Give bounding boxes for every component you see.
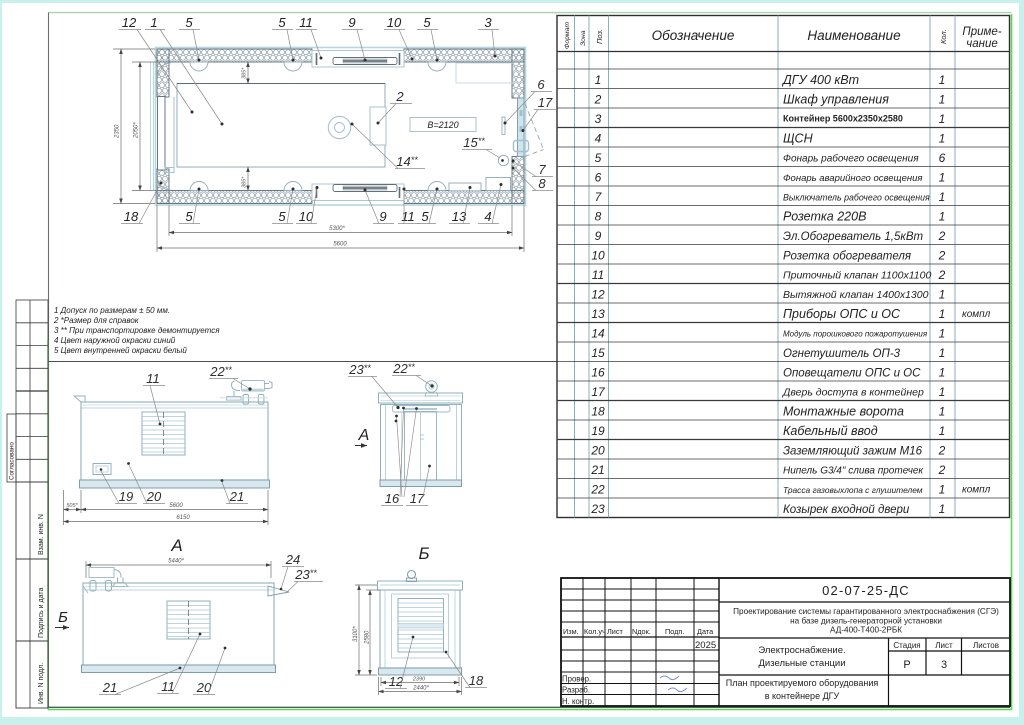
svg-text:11: 11 [146, 371, 160, 386]
svg-text:5300*: 5300* [329, 226, 345, 232]
svg-text:1: 1 [939, 288, 946, 302]
svg-text:Р: Р [903, 659, 910, 671]
svg-text:2390: 2390 [412, 677, 426, 683]
svg-text:5600: 5600 [333, 242, 347, 248]
svg-text:10: 10 [387, 15, 402, 30]
svg-text:Обозначение: Обозначение [652, 28, 735, 43]
svg-text:Дата: Дата [697, 627, 714, 636]
svg-text:Шкаф управления: Шкаф управления [783, 93, 889, 107]
svg-text:Заземляющий зажим М16: Заземляющий зажим М16 [783, 446, 923, 458]
svg-text:Кабельный ввод: Кабельный ввод [783, 424, 878, 438]
svg-text:2: 2 [938, 229, 946, 243]
svg-text:План проектируемого оборудован: План проектируемого оборудования [726, 678, 879, 688]
svg-text:ЩСН: ЩСН [783, 132, 814, 146]
svg-text:Приборы ОПС и ОС: Приборы ОПС и ОС [783, 307, 901, 321]
svg-text:1: 1 [939, 112, 946, 126]
svg-text:Дверь доступа в контейнер: Дверь доступа в контейнер [782, 387, 924, 399]
svg-text:21: 21 [102, 680, 117, 695]
svg-text:1: 1 [939, 307, 946, 321]
svg-text:11: 11 [592, 268, 604, 282]
svg-text:1: 1 [939, 327, 946, 341]
svg-text:18: 18 [124, 209, 139, 224]
svg-text:Провер.: Провер. [562, 675, 591, 684]
svg-text:1: 1 [939, 502, 946, 516]
svg-text:6150: 6150 [176, 515, 190, 521]
svg-text:23: 23 [590, 502, 605, 516]
svg-text:8: 8 [595, 210, 602, 224]
svg-text:1: 1 [150, 15, 157, 30]
svg-text:3: 3 [595, 112, 602, 126]
svg-text:9: 9 [595, 229, 602, 243]
svg-text:1: 1 [939, 73, 946, 87]
svg-text:5: 5 [185, 209, 193, 224]
svg-text:Монтажные ворота: Монтажные ворота [783, 405, 904, 419]
svg-text:5: 5 [421, 209, 429, 224]
svg-text:Подпись и дата: Подпись и дата [38, 588, 45, 638]
svg-text:Наименование: Наименование [807, 28, 900, 43]
svg-text:5440*: 5440* [168, 559, 184, 565]
svg-text:компл: компл [962, 485, 991, 496]
svg-text:Листов: Листов [973, 641, 999, 650]
svg-text:17: 17 [410, 491, 425, 506]
svg-text:Фонарь аварийного освещения: Фонарь аварийного освещения [783, 173, 922, 184]
svg-text:1: 1 [939, 346, 946, 360]
svg-text:9: 9 [379, 209, 386, 224]
svg-text:11: 11 [299, 15, 313, 30]
svg-text:6: 6 [537, 77, 545, 92]
svg-text:18: 18 [469, 673, 484, 688]
svg-text:Розетка обогревателя: Розетка обогревателя [783, 251, 911, 263]
svg-text:24: 24 [285, 552, 300, 567]
svg-text:2025: 2025 [695, 640, 716, 651]
svg-text:02-07-25-ДС: 02-07-25-ДС [822, 583, 910, 598]
svg-text:21: 21 [229, 489, 244, 504]
svg-text:Розетка 220В: Розетка 220В [783, 210, 866, 224]
svg-text:Фонарь рабочего освещения: Фонарь рабочего освещения [783, 153, 919, 165]
svg-text:8: 8 [538, 176, 546, 191]
svg-text:2: 2 [938, 249, 946, 263]
svg-text:Нипель G3/4" слива протечек: Нипель G3/4" слива протечек [783, 466, 924, 477]
svg-text:А: А [358, 427, 370, 444]
svg-text:Стадия: Стадия [893, 641, 920, 650]
svg-text:1: 1 [939, 210, 946, 224]
svg-text:Н. контр.: Н. контр. [562, 697, 594, 706]
svg-text:2: 2 [395, 89, 404, 104]
svg-text:Поз.: Поз. [595, 29, 604, 44]
svg-text:АД-400-Т400-2РБК: АД-400-Т400-2РБК [830, 626, 902, 635]
svg-text:ДГУ 400 кВт: ДГУ 400 кВт [781, 73, 859, 87]
svg-text:2580: 2580 [365, 630, 371, 645]
svg-text:Дизельные станции: Дизельные станции [758, 658, 845, 669]
svg-text:Б: Б [58, 609, 68, 626]
svg-text:1: 1 [939, 483, 946, 497]
svg-text:7: 7 [538, 162, 546, 177]
svg-text:Зона: Зона [580, 30, 587, 46]
svg-text:3100*: 3100* [353, 626, 359, 642]
svg-text:А: А [170, 536, 182, 555]
svg-text:на базе дизель-генераторной ус: на базе дизель-генераторной установки [790, 617, 942, 626]
svg-text:Огнетушитель ОП-3: Огнетушитель ОП-3 [783, 348, 901, 360]
svg-text:11: 11 [401, 209, 415, 224]
svg-text:Козырек входной двери: Козырек входной двери [783, 504, 910, 516]
svg-text:385*: 385* [242, 176, 248, 188]
svg-text:21: 21 [590, 463, 604, 477]
svg-text:3: 3 [941, 659, 947, 671]
svg-text:Кол.уч: Кол.уч [584, 627, 606, 636]
svg-text:Модуль порошкового пожаротушен: Модуль порошкового пожаротушения [783, 330, 928, 339]
svg-text:Кол.: Кол. [939, 29, 948, 44]
svg-text:2350: 2350 [115, 124, 121, 139]
svg-text:1: 1 [939, 385, 946, 399]
svg-text:5: 5 [278, 15, 286, 30]
svg-text:6: 6 [595, 171, 602, 185]
svg-text:20: 20 [590, 444, 605, 458]
svg-text:19: 19 [119, 489, 133, 504]
svg-text:2: 2 [938, 444, 946, 458]
svg-text:505*: 505* [66, 503, 78, 509]
svg-text:Разраб.: Разраб. [562, 686, 590, 695]
svg-text:14: 14 [591, 327, 605, 341]
svg-text:1: 1 [939, 405, 946, 419]
svg-text:10: 10 [591, 249, 605, 263]
svg-text:2: 2 [594, 93, 602, 107]
svg-text:чание: чание [966, 38, 997, 50]
svg-text:5600: 5600 [169, 503, 183, 509]
svg-text:Инв. N подл.: Инв. N подл. [38, 663, 45, 704]
svg-text:1: 1 [939, 424, 946, 438]
svg-text:5: 5 [595, 151, 602, 165]
svg-text:17: 17 [591, 385, 606, 399]
svg-text:2440*: 2440* [412, 686, 429, 692]
svg-text:Трасса газовыхлопа с глушителе: Трасса газовыхлопа с глушителем [783, 485, 923, 495]
svg-text:Приме-: Приме- [962, 26, 1001, 38]
svg-text:Вытяжной клапан 1400х1300: Вытяжной клапан 1400х1300 [783, 289, 929, 301]
svg-text:Эл.Обогреватель 1,5кВт: Эл.Обогреватель 1,5кВт [783, 231, 923, 243]
svg-text:20: 20 [196, 680, 212, 695]
svg-text:20: 20 [146, 489, 162, 504]
svg-text:Б: Б [418, 544, 429, 563]
svg-text:Взам. инв. N: Взам. инв. N [38, 514, 45, 555]
svg-text:9: 9 [348, 15, 355, 30]
svg-text:Подп.: Подп. [665, 627, 684, 636]
svg-text:компл: компл [962, 309, 991, 320]
svg-text:1: 1 [939, 366, 946, 380]
svg-text:5: 5 [278, 209, 286, 224]
svg-text:6: 6 [939, 151, 946, 165]
svg-text:3 ** При транспортировке демо: 3 ** При транспортировке демонтируется [54, 326, 220, 335]
svg-text:5: 5 [423, 15, 431, 30]
svg-text:19: 19 [591, 424, 605, 438]
svg-text:1: 1 [939, 93, 946, 107]
svg-text:2 *Размер для справок: 2 *Размер для справок [53, 316, 140, 325]
svg-text:2050*: 2050* [134, 122, 140, 139]
svg-text:10: 10 [299, 209, 314, 224]
svg-text:12: 12 [591, 288, 605, 302]
svg-text:4 Цвет наружной окраски синий: 4 Цвет наружной окраски синий [54, 336, 176, 345]
svg-text:1: 1 [595, 73, 602, 87]
svg-text:Формат: Формат [564, 22, 571, 49]
svg-text:Лист: Лист [607, 627, 624, 636]
svg-text:Лист: Лист [935, 641, 953, 650]
svg-text:13: 13 [591, 307, 605, 321]
svg-text:4: 4 [595, 132, 602, 146]
svg-text:1: 1 [939, 132, 946, 146]
svg-text:Nдок.: Nдок. [632, 627, 651, 636]
svg-text:В=2120: В=2120 [427, 120, 458, 130]
svg-text:Приточный клапан 1100х1100: Приточный клапан 1100х1100 [783, 270, 931, 282]
svg-text:12: 12 [122, 15, 137, 30]
svg-text:Изм.: Изм. [563, 627, 579, 636]
svg-text:в контейнере ДГУ: в контейнере ДГУ [765, 691, 840, 701]
svg-text:3: 3 [484, 15, 492, 30]
svg-text:Оповещатели ОПС и ОС: Оповещатели ОПС и ОС [783, 368, 921, 380]
svg-text:2: 2 [938, 463, 946, 477]
svg-text:16: 16 [385, 491, 400, 506]
svg-text:Проектирование системы гаранти: Проектирование системы гарантированного … [733, 607, 999, 616]
svg-text:16: 16 [591, 366, 605, 380]
svg-text:Контейнер 5600х2350х2580: Контейнер 5600х2350х2580 [783, 114, 903, 124]
svg-text:4: 4 [484, 209, 491, 224]
svg-text:18: 18 [591, 405, 605, 419]
svg-text:1 Допуск по размерам ± 50 мм.: 1 Допуск по размерам ± 50 мм. [54, 306, 170, 315]
svg-text:Выключатель рабочего освещения: Выключатель рабочего освещения [783, 193, 930, 203]
svg-text:2: 2 [938, 268, 946, 282]
svg-text:22: 22 [590, 483, 605, 497]
svg-text:15: 15 [591, 346, 605, 360]
svg-text:Согласовано: Согласовано [9, 442, 16, 480]
svg-text:1: 1 [939, 190, 946, 204]
svg-text:1: 1 [939, 171, 946, 185]
svg-text:17: 17 [538, 95, 553, 110]
svg-text:385*: 385* [242, 67, 248, 79]
svg-text:5: 5 [185, 15, 193, 30]
svg-text:5 Цвет внутренней окраски бел: 5 Цвет внутренней окраски белый [54, 346, 187, 355]
svg-text:Электроснабжение.: Электроснабжение. [758, 645, 845, 656]
